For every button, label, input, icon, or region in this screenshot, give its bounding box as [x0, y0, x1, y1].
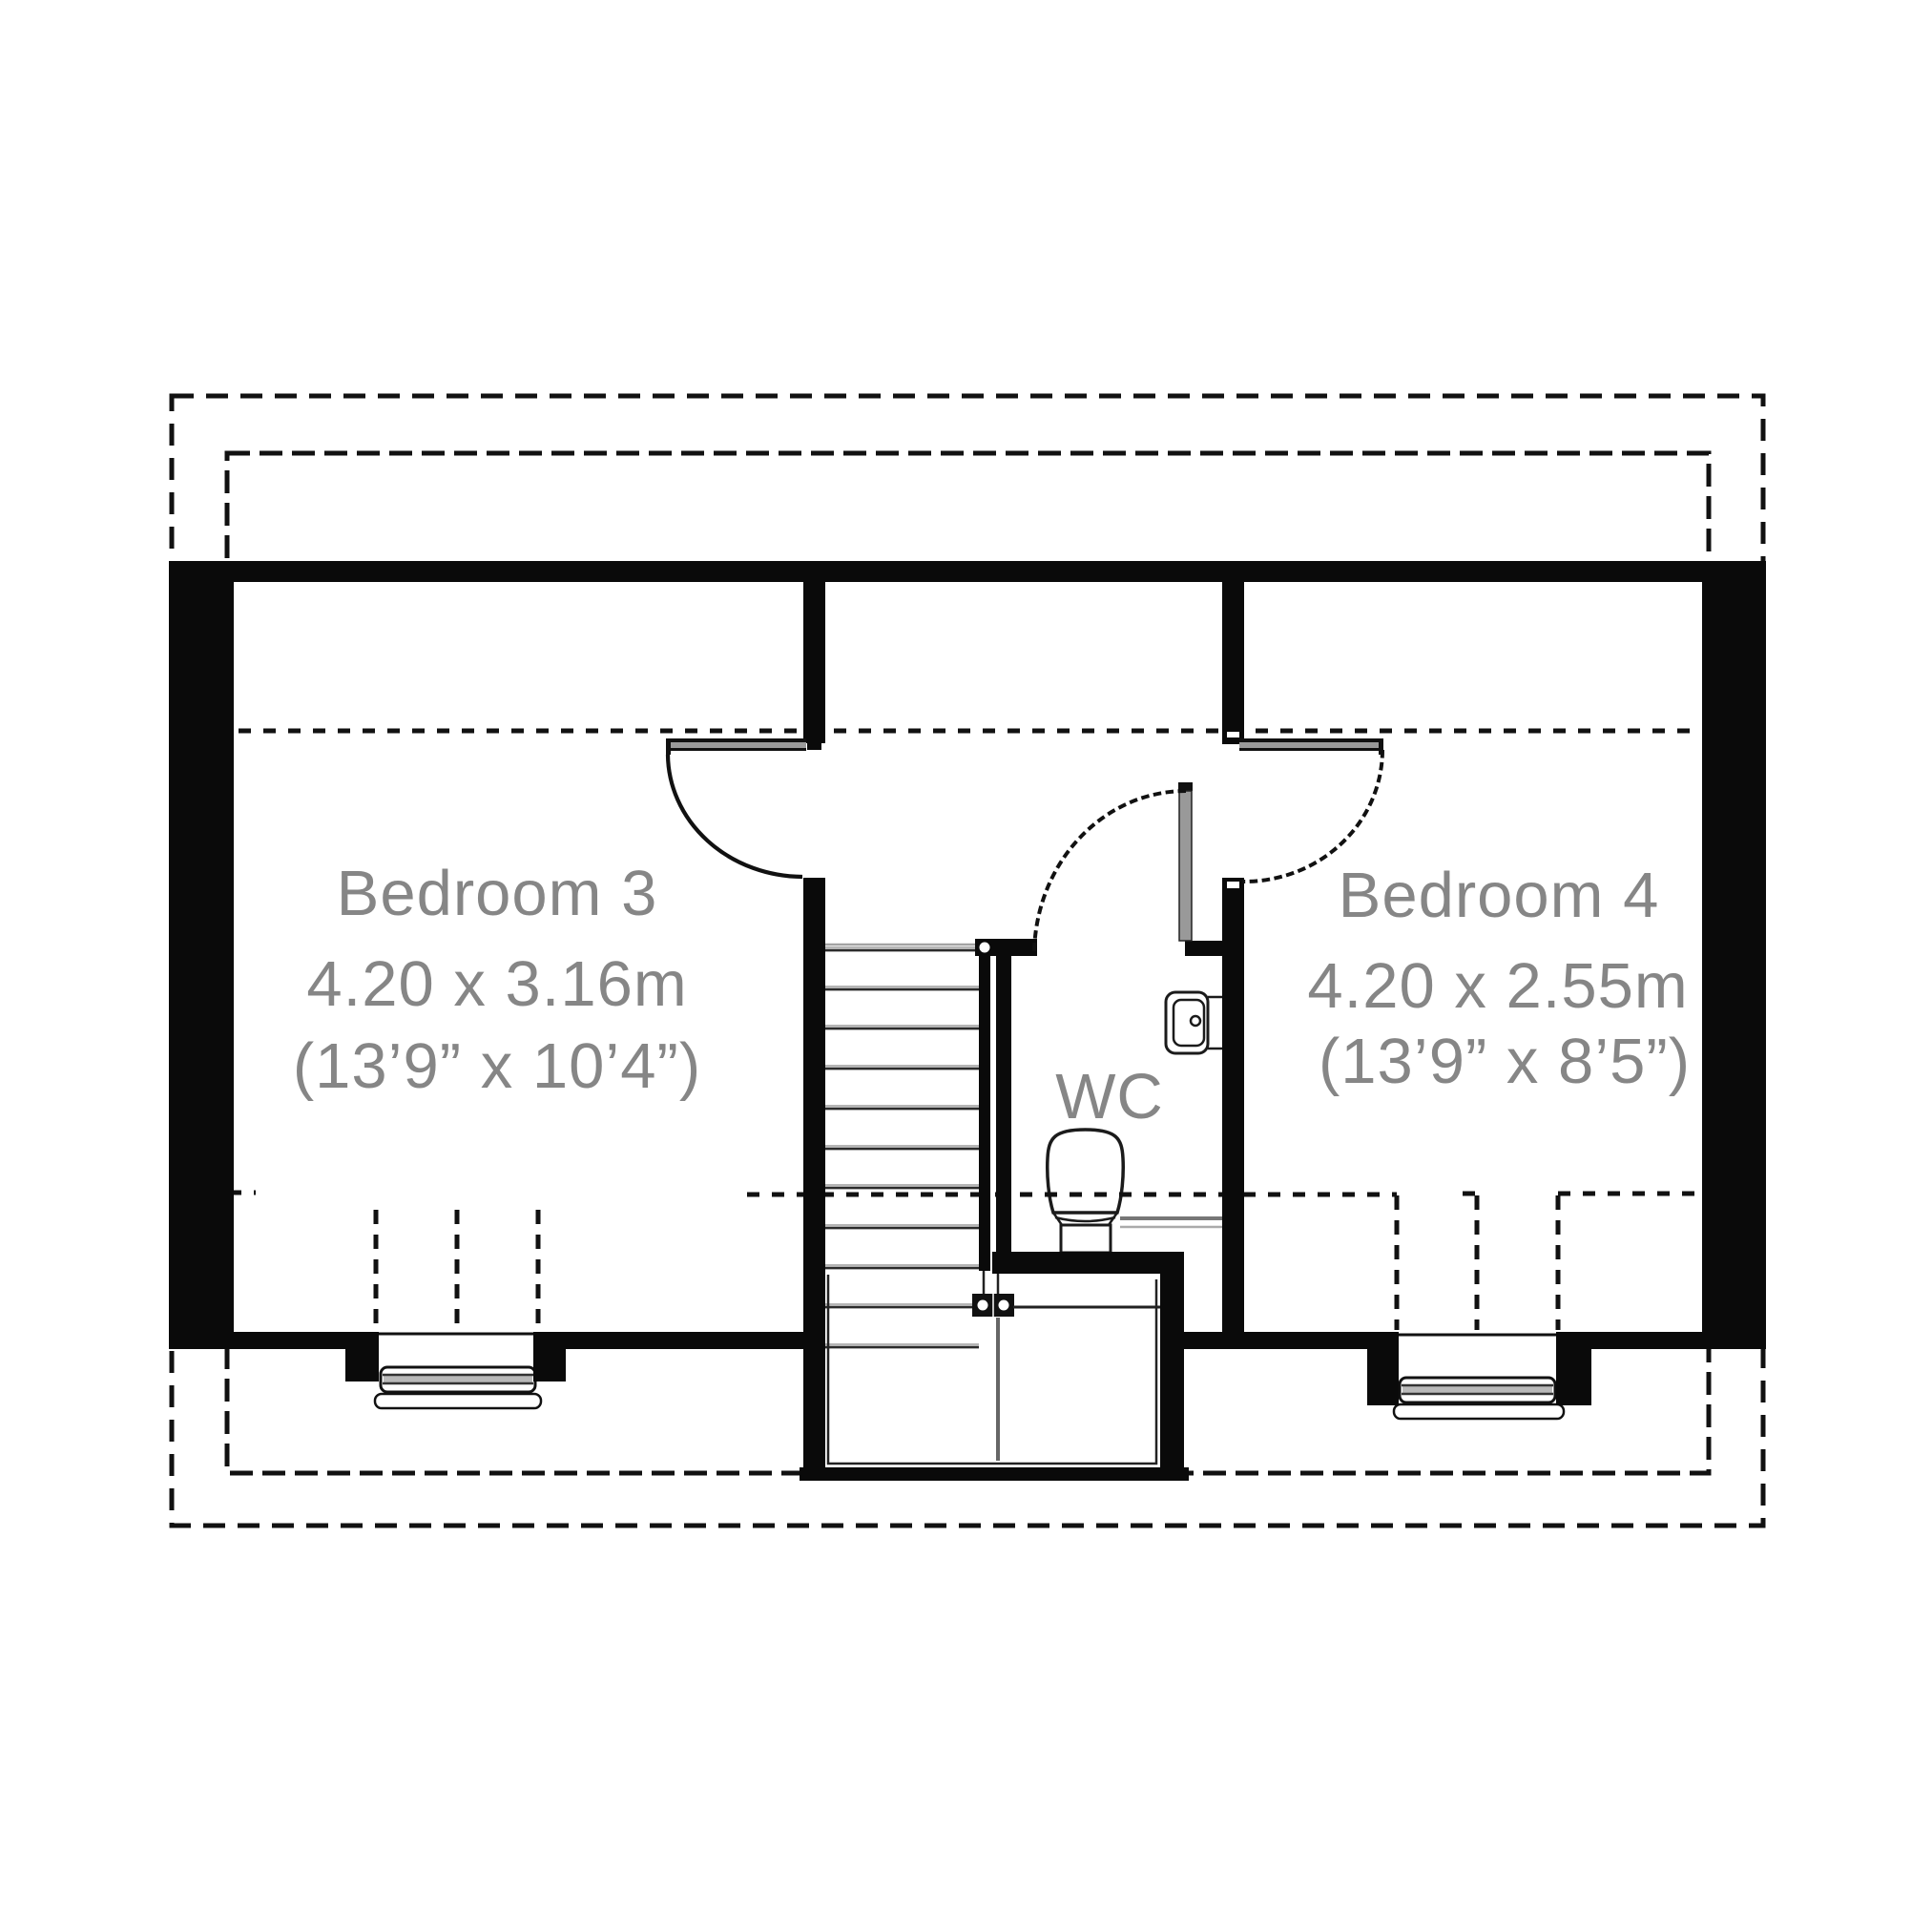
svg-text:4.20 x 2.55m: 4.20 x 2.55m: [1307, 950, 1688, 1022]
svg-text:Bedroom 3: Bedroom 3: [337, 858, 658, 929]
svg-text:Bedroom 4: Bedroom 4: [1339, 860, 1660, 931]
svg-text:(13’9” x 10’4”): (13’9” x 10’4”): [293, 1030, 701, 1102]
svg-text:WC: WC: [1055, 1061, 1164, 1132]
svg-text:(13’9” x 8’5”): (13’9” x 8’5”): [1319, 1026, 1691, 1097]
svg-text:4.20 x 3.16m: 4.20 x 3.16m: [306, 948, 687, 1020]
